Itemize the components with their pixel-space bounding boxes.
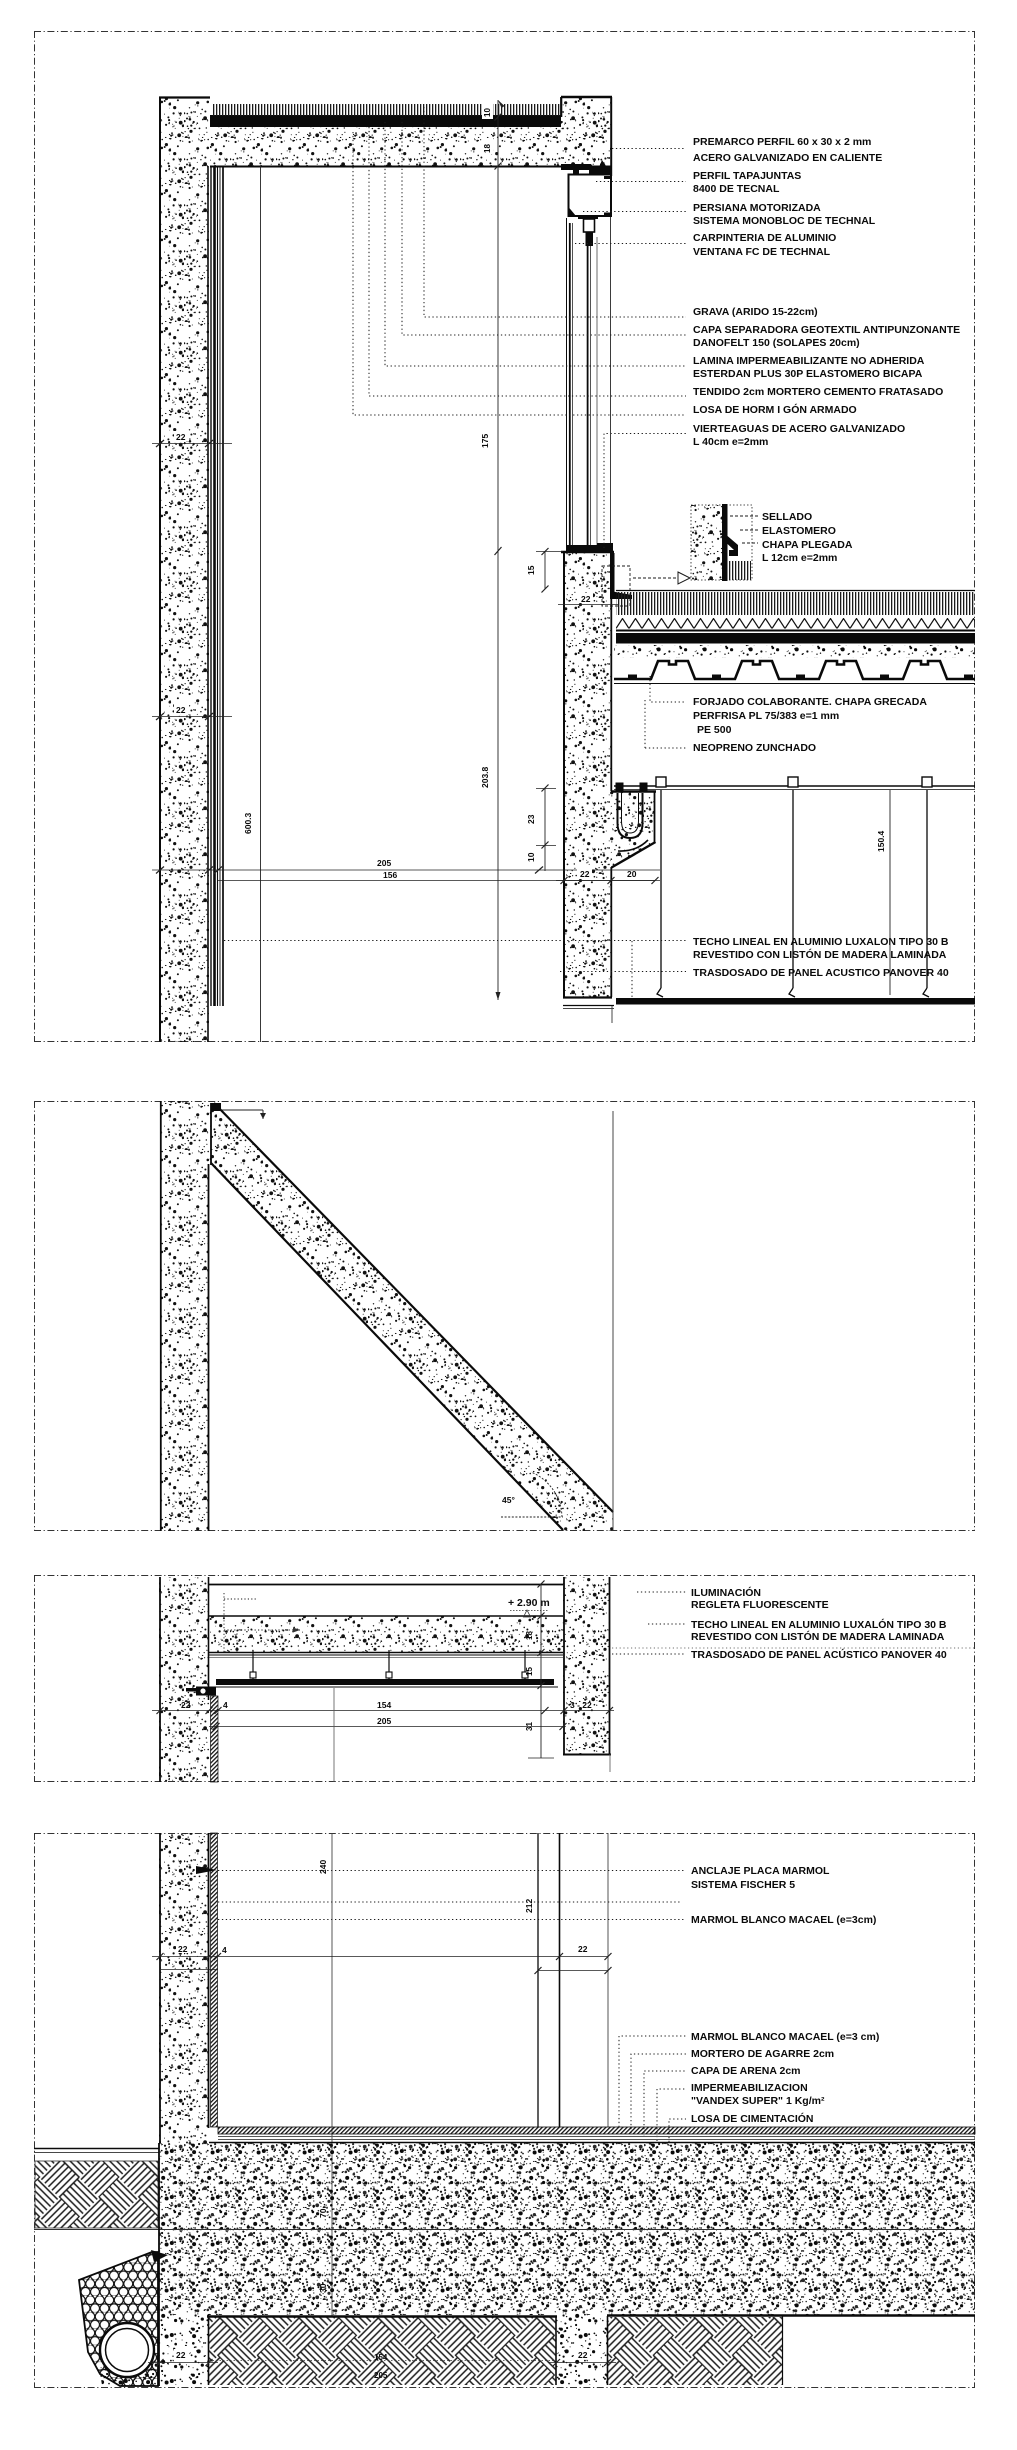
svg-text:8400 DE TECNAL: 8400 DE TECNAL bbox=[693, 183, 780, 195]
svg-text:203.8: 203.8 bbox=[480, 766, 490, 788]
svg-text:CARPINTERIA DE ALUMINIO: CARPINTERIA DE ALUMINIO bbox=[693, 232, 836, 244]
svg-text:31: 31 bbox=[525, 1722, 534, 1731]
svg-text:+ 2.90 m: + 2.90 m bbox=[508, 1597, 550, 1609]
svg-text:PERSIANA MOTORIZADA: PERSIANA MOTORIZADA bbox=[693, 202, 821, 214]
svg-text:205: 205 bbox=[377, 1716, 391, 1726]
svg-text:23: 23 bbox=[526, 814, 536, 824]
svg-text:15: 15 bbox=[525, 1667, 534, 1676]
svg-text:ANCLAJE PLACA MARMOL: ANCLAJE PLACA MARMOL bbox=[691, 1865, 830, 1877]
svg-text:MARMOL BLANCO MACAEL (e=3cm): MARMOL BLANCO MACAEL (e=3cm) bbox=[691, 1914, 876, 1926]
svg-text:REGLETA FLUORESCENTE: REGLETA FLUORESCENTE bbox=[691, 1599, 829, 1611]
svg-text:ILUMINACIÓN: ILUMINACIÓN bbox=[691, 1586, 761, 1599]
svg-text:L 40cm e=2mm: L 40cm e=2mm bbox=[693, 436, 768, 448]
svg-text:PERFRISA PL 75/383 e=1 mm: PERFRISA PL 75/383 e=1 mm bbox=[693, 710, 839, 722]
svg-text:SISTEMA MONOBLOC DE TECHNAL: SISTEMA MONOBLOC DE TECHNAL bbox=[693, 215, 876, 227]
svg-text:22: 22 bbox=[578, 1944, 588, 1954]
svg-text:240: 240 bbox=[318, 1860, 328, 1874]
svg-text:NEOPRENO ZUNCHADO: NEOPRENO ZUNCHADO bbox=[693, 742, 816, 754]
svg-text:REVESTIDO CON LISTÓN DE MADERA: REVESTIDO CON LISTÓN DE MADERA LAMINADA bbox=[691, 1630, 945, 1643]
svg-text:4: 4 bbox=[223, 1700, 228, 1710]
svg-text:45°: 45° bbox=[502, 1495, 515, 1505]
svg-text:VENTANA FC DE TECHNAL: VENTANA FC DE TECHNAL bbox=[693, 246, 831, 258]
svg-text:TECHO LINEAL EN ALUMINIO LUXAL: TECHO LINEAL EN ALUMINIO LUXALÓN TIPO 30… bbox=[691, 1618, 947, 1631]
svg-text:22: 22 bbox=[578, 2350, 588, 2360]
svg-text:22: 22 bbox=[176, 432, 186, 442]
svg-text:IMPERMEABILIZACION: IMPERMEABILIZACION bbox=[691, 2082, 808, 2094]
svg-text:PE 500: PE 500 bbox=[697, 724, 732, 736]
svg-text:ESTERDAN PLUS 30P ELASTOMERO B: ESTERDAN PLUS 30P ELASTOMERO BICAPA bbox=[693, 368, 923, 380]
svg-text:10: 10 bbox=[483, 108, 492, 117]
svg-text:175: 175 bbox=[480, 434, 490, 448]
svg-text:10: 10 bbox=[526, 852, 536, 862]
svg-text:18: 18 bbox=[483, 144, 492, 153]
svg-text:4: 4 bbox=[222, 1945, 227, 1955]
svg-text:DANOFELT 150 (SOLAPES 20cm): DANOFELT 150 (SOLAPES 20cm) bbox=[693, 337, 860, 349]
svg-text:205: 205 bbox=[377, 858, 391, 868]
svg-text:22: 22 bbox=[176, 705, 186, 715]
svg-text:154: 154 bbox=[377, 1700, 391, 1710]
svg-text:LAMINA IMPERMEABILIZANTE NO AD: LAMINA IMPERMEABILIZANTE NO ADHERIDA bbox=[693, 355, 925, 367]
svg-text:GRAVA (ARIDO 15-22cm): GRAVA (ARIDO 15-22cm) bbox=[693, 306, 818, 318]
svg-text:CHAPA PLEGADA: CHAPA PLEGADA bbox=[762, 539, 853, 551]
svg-text:22: 22 bbox=[178, 1944, 188, 1954]
svg-text:VIERTEAGUAS DE ACERO GALVANIZA: VIERTEAGUAS DE ACERO GALVANIZADO bbox=[693, 423, 905, 435]
svg-text:15: 15 bbox=[526, 565, 536, 575]
svg-text:SELLADO: SELLADO bbox=[762, 511, 812, 523]
svg-text:TENDIDO 2cm MORTERO CEMENTO FR: TENDIDO 2cm MORTERO CEMENTO FRATASADO bbox=[693, 386, 943, 398]
svg-text:CAPA SEPARADORA GEOTEXTIL ANTI: CAPA SEPARADORA GEOTEXTIL ANTIPUNZONANTE bbox=[693, 324, 960, 336]
svg-text:205: 205 bbox=[374, 2371, 388, 2380]
svg-text:PREMARCO PERFIL 60 x 30 x 2 mm: PREMARCO PERFIL 60 x 30 x 2 mm bbox=[693, 136, 871, 148]
svg-text:PERFIL TAPAJUNTAS: PERFIL TAPAJUNTAS bbox=[693, 170, 801, 182]
svg-text:ACERO GALVANIZADO EN CALIENTE: ACERO GALVANIZADO EN CALIENTE bbox=[693, 152, 882, 164]
svg-text:154: 154 bbox=[374, 2353, 388, 2362]
svg-text:TECHO LINEAL EN ALUMINIO LUXAL: TECHO LINEAL EN ALUMINIO LUXALON TIPO 30… bbox=[693, 936, 949, 948]
svg-text:LOSA DE HORM I GÓN ARMADO: LOSA DE HORM I GÓN ARMADO bbox=[693, 403, 857, 416]
svg-text:3 - 22: 3 - 22 bbox=[570, 1700, 592, 1710]
svg-text:18: 18 bbox=[525, 1631, 534, 1640]
svg-text:REVESTIDO CON LISTÓN DE MADERA: REVESTIDO CON LISTÓN DE MADERA LAMINADA bbox=[693, 948, 947, 961]
svg-text:600.3: 600.3 bbox=[243, 812, 253, 834]
svg-text:MORTERO DE AGARRE 2cm: MORTERO DE AGARRE 2cm bbox=[691, 2048, 834, 2060]
svg-text:22: 22 bbox=[181, 1700, 191, 1710]
svg-text:FORJADO COLABORANTE. CHAPA GRE: FORJADO COLABORANTE. CHAPA GRECADA bbox=[693, 696, 927, 708]
svg-text:22: 22 bbox=[581, 594, 591, 604]
svg-text:MARMOL BLANCO MACAEL (e=3 cm): MARMOL BLANCO MACAEL (e=3 cm) bbox=[691, 2031, 879, 2043]
svg-text:156: 156 bbox=[383, 870, 397, 880]
svg-text:CAPA DE ARENA 2cm: CAPA DE ARENA 2cm bbox=[691, 2065, 801, 2077]
svg-text:"VANDEX SUPER" 1 Kg/m²: "VANDEX SUPER" 1 Kg/m² bbox=[691, 2095, 825, 2107]
svg-text:20: 20 bbox=[627, 869, 637, 879]
svg-text:212: 212 bbox=[524, 1899, 534, 1913]
svg-text:TRASDOSADO DE PANEL ACÚSTICO P: TRASDOSADO DE PANEL ACÚSTICO PANOVER 40 bbox=[691, 1648, 947, 1661]
svg-text:22: 22 bbox=[580, 869, 590, 879]
svg-text:SISTEMA FISCHER 5: SISTEMA FISCHER 5 bbox=[691, 1879, 795, 1891]
svg-text:150.4: 150.4 bbox=[876, 830, 886, 852]
svg-text:L 12cm e=2mm: L 12cm e=2mm bbox=[762, 552, 837, 564]
svg-text:ELASTOMERO: ELASTOMERO bbox=[762, 525, 836, 537]
svg-text:LOSA DE CIMENTACIÓN: LOSA DE CIMENTACIÓN bbox=[691, 2112, 814, 2125]
svg-text:22: 22 bbox=[176, 2350, 186, 2360]
svg-text:TRASDOSADO DE PANEL ACUSTICO P: TRASDOSADO DE PANEL ACUSTICO PANOVER 40 bbox=[693, 967, 949, 979]
